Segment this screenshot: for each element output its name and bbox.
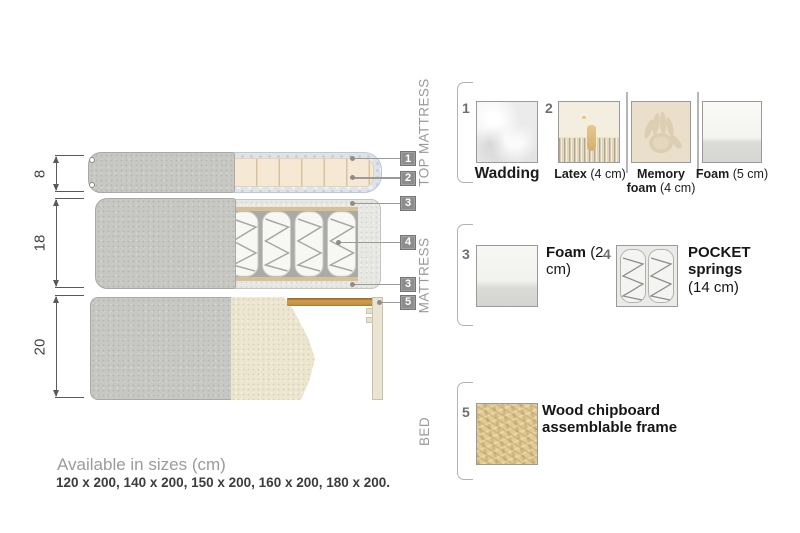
mattress-construction-infographic: 8 18 20 (0, 0, 800, 533)
hand-imprint-image (632, 102, 691, 163)
foam-strip (228, 277, 358, 281)
latex-speck (582, 116, 586, 119)
dimension-arrow-line (56, 297, 57, 396)
legend-item-number: 3 (462, 246, 470, 262)
legend-item-label: Foam (2 cm) (546, 244, 606, 279)
snap-button (89, 182, 95, 188)
latex-swatch-image (558, 101, 620, 163)
leader-line (354, 284, 401, 286)
available-sizes-list: 120 x 200, 140 x 200, 150 x 200, 160 x 2… (56, 475, 390, 490)
section-title-bed: BED (402, 382, 446, 480)
arrow-up-icon (53, 199, 59, 206)
legend-divider (697, 92, 699, 173)
arrow-down-icon (53, 280, 59, 287)
callout-dot (350, 156, 355, 161)
dimension-tick (55, 397, 84, 398)
frame-notch (366, 308, 373, 314)
callout-dot (350, 201, 355, 206)
leader-line (354, 177, 401, 179)
legend-item-number: 5 (462, 404, 470, 420)
leader-line (381, 302, 401, 304)
wadding-swatch-image (476, 101, 538, 163)
top-mattress-graphic (88, 152, 382, 193)
snap-button (89, 157, 95, 163)
callout-dot (336, 240, 341, 245)
bed-cover-fabric (90, 297, 232, 400)
dimension-label: 18 (32, 223, 49, 263)
legend-item-label: Wood chipboard assemblable frame (542, 402, 687, 437)
latex-finger-press (587, 125, 596, 151)
leader-line (354, 158, 401, 160)
dimension-top-mattress: 8 (34, 155, 86, 192)
callout-dot (377, 300, 382, 305)
dimension-bed: 20 (34, 295, 86, 398)
mattress-cover-fabric (95, 198, 236, 289)
section-title-mattress: MATTRESS (402, 224, 446, 326)
dimension-tick (55, 155, 84, 156)
chipboard-swatch-image (476, 403, 538, 465)
legend-item-number: 4 (603, 246, 611, 262)
pocket-springs-swatch-image (616, 245, 678, 307)
bed-base-graphic (90, 297, 383, 400)
leader-line (340, 242, 401, 244)
dimension-tick (55, 191, 84, 192)
section-bracket (457, 382, 473, 480)
memory-foam-swatch-image (631, 101, 691, 163)
frame-notch (366, 317, 373, 323)
section-bracket (457, 224, 473, 326)
dimension-mattress: 18 (34, 198, 86, 288)
section-title-top-mattress: TOP MATTRESS (402, 82, 446, 183)
arrow-down-icon (53, 184, 59, 191)
available-sizes-title: Available in sizes (cm) (57, 455, 226, 475)
legend-item-label: POCKET springs (14 cm) (688, 244, 762, 296)
dimension-tick (55, 295, 84, 296)
legend-item-number: 1 (462, 100, 470, 116)
foam-blocks-image (234, 158, 374, 187)
wood-slat (287, 298, 379, 306)
bed-fabric-drape (231, 297, 315, 400)
dimension-tick (55, 198, 84, 199)
callout-dot (350, 175, 355, 180)
callout-dot (350, 282, 355, 287)
dimension-label: 20 (32, 327, 49, 367)
legend-item-number: 2 (545, 100, 553, 116)
pocket-springs-pair-image (617, 246, 677, 306)
frame-post (372, 297, 383, 400)
dimension-tick (55, 287, 84, 288)
leader-line (354, 203, 401, 205)
foam-5cm-swatch-image (702, 101, 762, 163)
legend-divider (626, 92, 628, 173)
foam-2cm-swatch-image (476, 245, 538, 307)
legend-item-label: Wadding (462, 165, 552, 183)
arrow-down-icon (53, 390, 59, 397)
arrow-up-icon (53, 296, 59, 303)
callout-badge-3: 3 (400, 196, 416, 211)
legend-item-label: Foam (5 cm) (689, 167, 775, 181)
dimension-label: 8 (32, 154, 49, 194)
mattress-cover-fabric (88, 152, 235, 193)
dimension-arrow-line (56, 200, 57, 286)
arrow-up-icon (53, 156, 59, 163)
